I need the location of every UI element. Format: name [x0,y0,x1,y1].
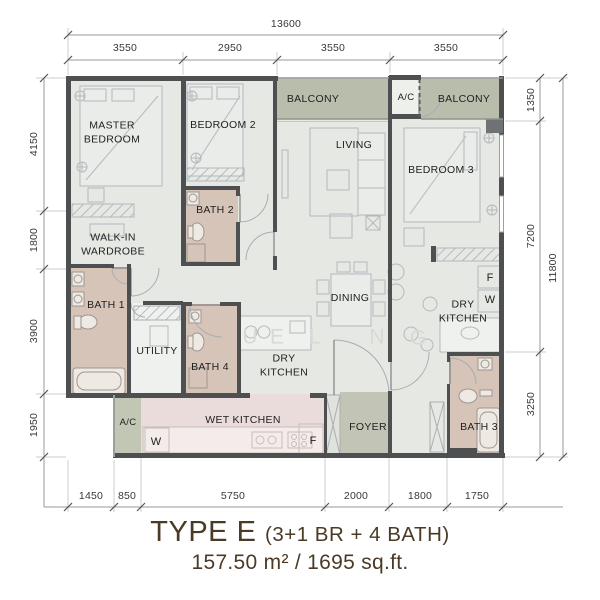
dim-left-2: 1800 [29,228,40,252]
title-block: TYPE E (3+1 BR + 4 BATH) 157.50 m² / 169… [0,516,600,575]
watermark-letter: U [242,327,257,348]
room-label-walk-in-wardrobe: WALK-IN WARDROBE [67,231,159,258]
dim-left-3: 3900 [29,319,40,343]
dim-top-total: 13600 [271,19,301,30]
room-label-bedroom-2: BEDROOM 2 [190,119,256,133]
room-label-utility: UTILITY [136,345,177,359]
dim-bottom-3: 5750 [221,491,245,502]
washer-label-wet-kitchen: W [151,435,161,449]
unit-type-title: TYPE E (3+1 BR + 4 BATH) [0,516,600,549]
floor-plan-page: U E L N G MASTER BEDROOM BEDROOM 2 BALCO… [0,0,600,600]
dim-right-total: 11800 [548,253,559,282]
room-label-balcony-right: BALCONY [438,93,490,107]
room-label-foyer: FOYER [349,421,387,435]
room-label-master-bedroom: MASTER BEDROOM [70,119,154,146]
room-label-bath-2: BATH 2 [196,204,234,218]
dim-right-1: 1350 [526,88,537,112]
room-label-bath-3: BATH 3 [460,421,498,435]
dim-top-3: 3550 [321,43,345,54]
room-label-ac-bottom: A/C [120,417,137,429]
room-label-wet-kitchen: WET KITCHEN [205,414,280,428]
unit-area: 157.50 m² / 1695 sq.ft. [0,551,600,575]
watermark-letter: N [369,327,384,348]
dim-top-1: 3550 [113,43,137,54]
dim-top-2: 2950 [218,43,242,54]
watermark-letter: E [270,327,284,348]
unit-type-name: TYPE E [150,516,256,548]
dim-left-1: 4150 [29,132,40,156]
dim-bottom-5: 1800 [408,491,432,502]
watermark-letter: L [309,327,321,348]
dim-bottom-1: 1450 [79,491,103,502]
room-label-bath-1: BATH 1 [87,299,125,313]
room-label-dry-kitchen-mid: DRY KITCHEN [253,352,315,379]
dim-bottom-4: 2000 [344,491,368,502]
room-label-bedroom-3: BEDROOM 3 [408,164,474,178]
dim-right-3: 3250 [526,392,537,416]
dim-bottom-6: 1750 [465,491,489,502]
washer-label-right: W [485,293,495,307]
watermark-letter: G [410,328,426,349]
fridge-label-right: F [487,271,494,285]
room-label-living: LIVING [336,139,372,153]
room-label-bath-4: BATH 4 [191,361,229,375]
room-label-ac-top: A/C [398,92,415,104]
room-label-dining: DINING [331,292,370,306]
dim-bottom-2: 850 [118,491,136,502]
dim-right-2: 7200 [526,224,537,248]
dim-left-4: 1950 [29,413,40,437]
room-label-balcony-left: BALCONY [287,93,339,107]
fridge-label-wet-kitchen: F [310,434,317,448]
dim-top-4: 3550 [434,43,458,54]
unit-config: (3+1 BR + 4 BATH) [265,523,450,546]
